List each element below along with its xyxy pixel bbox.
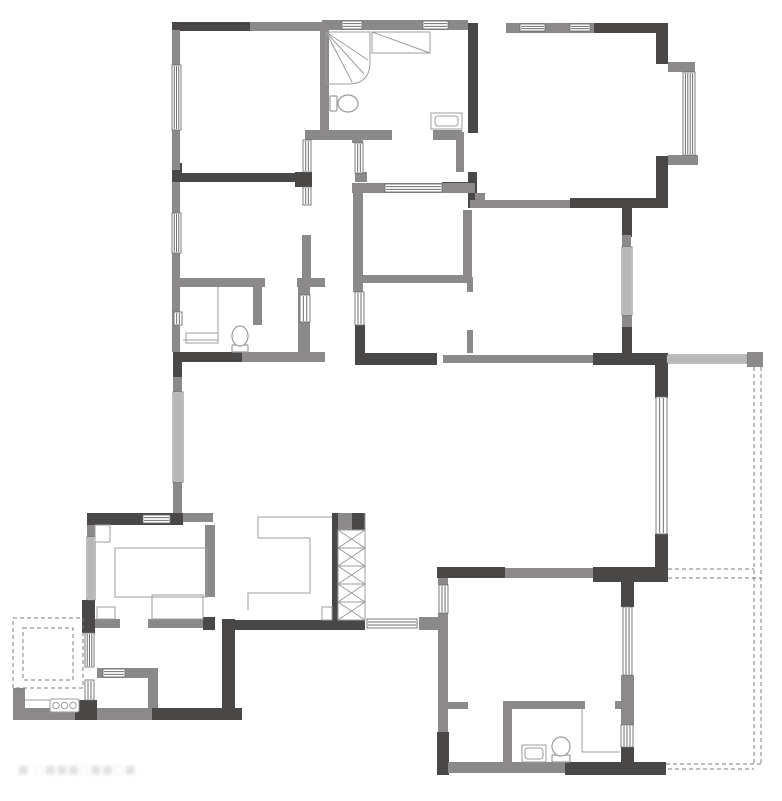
wall-dark: [621, 747, 634, 775]
wall-dark: [355, 353, 437, 365]
wall-mid: [148, 678, 158, 708]
wall-mid: [438, 613, 448, 630]
fixture-line: [372, 32, 430, 53]
window: [520, 24, 545, 31]
wall-mid: [505, 568, 593, 578]
wall-dark: [468, 23, 478, 133]
window: [103, 669, 125, 677]
wall-mid: [250, 22, 322, 31]
window: [367, 619, 417, 628]
wall-mid: [363, 275, 470, 283]
wall-mid: [456, 132, 464, 172]
wall-mid: [467, 330, 473, 353]
wall-mid: [173, 482, 182, 513]
furniture-outline: [186, 333, 218, 343]
window: [342, 21, 362, 29]
window: [355, 143, 363, 173]
wall-mid: [668, 62, 695, 72]
window: [300, 295, 310, 322]
window: [385, 184, 442, 192]
wall-mid: [622, 315, 632, 327]
wall-mid: [355, 172, 367, 182]
wall-mid: [438, 630, 448, 732]
furniture-outline: [95, 525, 110, 542]
window: [85, 680, 94, 700]
wall-mid: [175, 278, 265, 287]
wall-mid: [242, 352, 325, 362]
window: [303, 140, 311, 172]
toilet-bowl: [338, 95, 358, 112]
balcony-dashed-outline: [23, 628, 73, 680]
wall-mid: [305, 130, 392, 140]
wall-mid: [302, 235, 311, 283]
wall-dark: [82, 600, 95, 633]
cabinet-outline: [248, 517, 332, 610]
wall-mid: [503, 701, 585, 709]
furniture-outline: [97, 607, 115, 619]
wall-mid: [352, 133, 363, 143]
furniture-outline: [431, 113, 462, 129]
furniture-outline: [115, 548, 207, 597]
window: [623, 607, 632, 675]
stove-icon: [50, 699, 79, 712]
toilet-icon: [232, 326, 248, 352]
window: [143, 515, 170, 523]
wall-dark: [172, 173, 310, 182]
wall-mid: [172, 182, 180, 352]
wall-mid: [320, 23, 329, 133]
toilet-tank: [330, 96, 337, 111]
window: [174, 312, 182, 325]
sink-basin-icon: [525, 748, 543, 759]
wall-mid: [443, 355, 593, 363]
floor-plan: [0, 0, 782, 801]
wall-dark: [570, 198, 668, 208]
furniture-outline: [322, 607, 332, 620]
wall-dark: [655, 353, 668, 398]
window: [439, 585, 448, 613]
window: [423, 21, 448, 29]
toilet-bowl: [232, 326, 248, 346]
wall-dark: [437, 567, 505, 578]
sink-basin-icon: [435, 116, 458, 126]
toilet-icon: [552, 737, 570, 762]
floor-plan-canvas: ■ □■■■□■■□■: [0, 0, 782, 801]
wall-mid: [253, 287, 262, 325]
window: [683, 72, 695, 155]
wall-mid: [747, 352, 763, 367]
wall-dark: [172, 22, 250, 31]
wall-dark: [437, 732, 449, 775]
wall-mid: [448, 762, 565, 773]
wall-dark: [295, 172, 312, 187]
wall-mid: [463, 210, 472, 277]
wall-mid: [95, 619, 120, 628]
watermark: ■ □■■■□■■□■: [18, 763, 136, 776]
wall-dark: [332, 513, 338, 622]
wall-mid: [615, 701, 622, 709]
wall-mid: [475, 193, 485, 203]
wall-dark: [173, 352, 242, 362]
wall-dark: [621, 578, 634, 607]
window: [570, 24, 590, 31]
wall-dark: [235, 620, 365, 630]
wall-dark: [222, 619, 235, 710]
window: [656, 397, 667, 534]
wall-mid: [503, 709, 512, 762]
wall-mid: [97, 708, 152, 720]
wall-dark: [203, 617, 215, 630]
wall-mid: [353, 193, 363, 292]
wall-mid: [183, 513, 213, 522]
wall-mid: [448, 702, 468, 709]
wall-mid: [87, 525, 95, 537]
wall-mid: [438, 578, 448, 585]
wall-mid: [622, 235, 631, 247]
wall-mid: [338, 513, 352, 530]
wall-mid: [621, 675, 634, 725]
wall-mid: [467, 277, 473, 292]
wall-dark: [565, 762, 666, 775]
furniture-outline: [152, 595, 203, 619]
window: [303, 187, 311, 205]
toilet-bowl: [552, 737, 570, 756]
wall-mid: [668, 155, 698, 165]
wall-dark: [656, 23, 668, 64]
wall-dark: [622, 208, 632, 237]
wall-mid: [419, 617, 438, 630]
wall-mid: [297, 278, 325, 287]
wall-mid: [148, 619, 203, 628]
wall-mid: [173, 377, 182, 392]
toilet-icon: [330, 95, 358, 112]
window: [355, 292, 364, 325]
